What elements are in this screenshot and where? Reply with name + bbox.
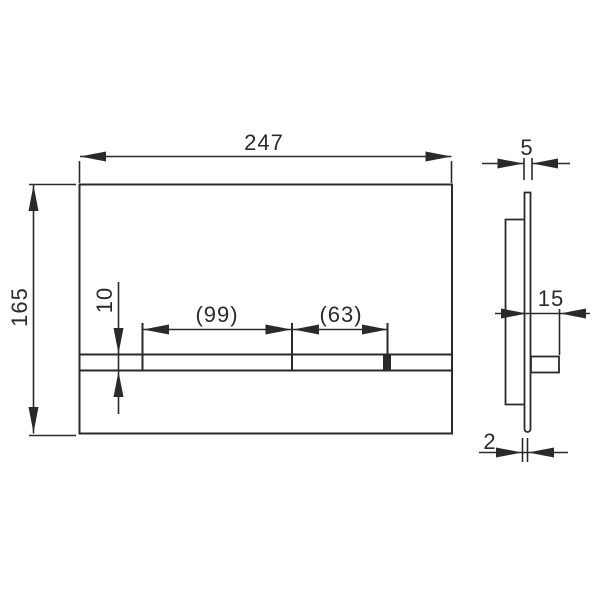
flush-plate-drawing: 247 165 10 (99) <box>0 0 600 600</box>
small-button-right-end-bar <box>383 355 391 371</box>
dim-plate-thickness: 5 <box>482 135 570 180</box>
dim-label-overall-height: 165 <box>7 287 32 327</box>
arrow-left-icon <box>80 152 106 162</box>
front-view <box>80 185 453 434</box>
side-button-protrusion <box>531 357 559 373</box>
arrow-right-icon <box>496 448 522 458</box>
arrow-right-icon <box>501 309 527 319</box>
dim-label-bottom-gap: 2 <box>483 429 496 454</box>
dim-button-projection: 15 <box>495 286 590 355</box>
dim-label-plate-thickness: 5 <box>520 135 533 160</box>
dim-label-overall-width: 247 <box>244 130 284 155</box>
dim-label-strip-height: 10 <box>92 287 117 313</box>
dim-overall-width: 247 <box>80 130 452 183</box>
technical-drawing-canvas: 247 165 10 (99) <box>0 0 600 600</box>
arrow-left-icon <box>528 448 554 458</box>
dim-bottom-gap: 2 <box>479 429 568 462</box>
arrow-left-icon <box>532 159 558 169</box>
dim-label-button-projection: 15 <box>538 286 564 311</box>
front-plate-outline <box>80 185 453 434</box>
arrow-right-icon <box>426 152 452 162</box>
dim-overall-height: 165 <box>7 185 76 436</box>
arrow-down-icon <box>29 407 39 433</box>
dim-label-large-button: (99) <box>195 302 238 327</box>
side-plate-profile <box>525 193 531 433</box>
arrow-up-icon <box>29 185 39 211</box>
arrow-right-icon <box>498 159 524 169</box>
dim-label-small-button: (63) <box>319 302 362 327</box>
